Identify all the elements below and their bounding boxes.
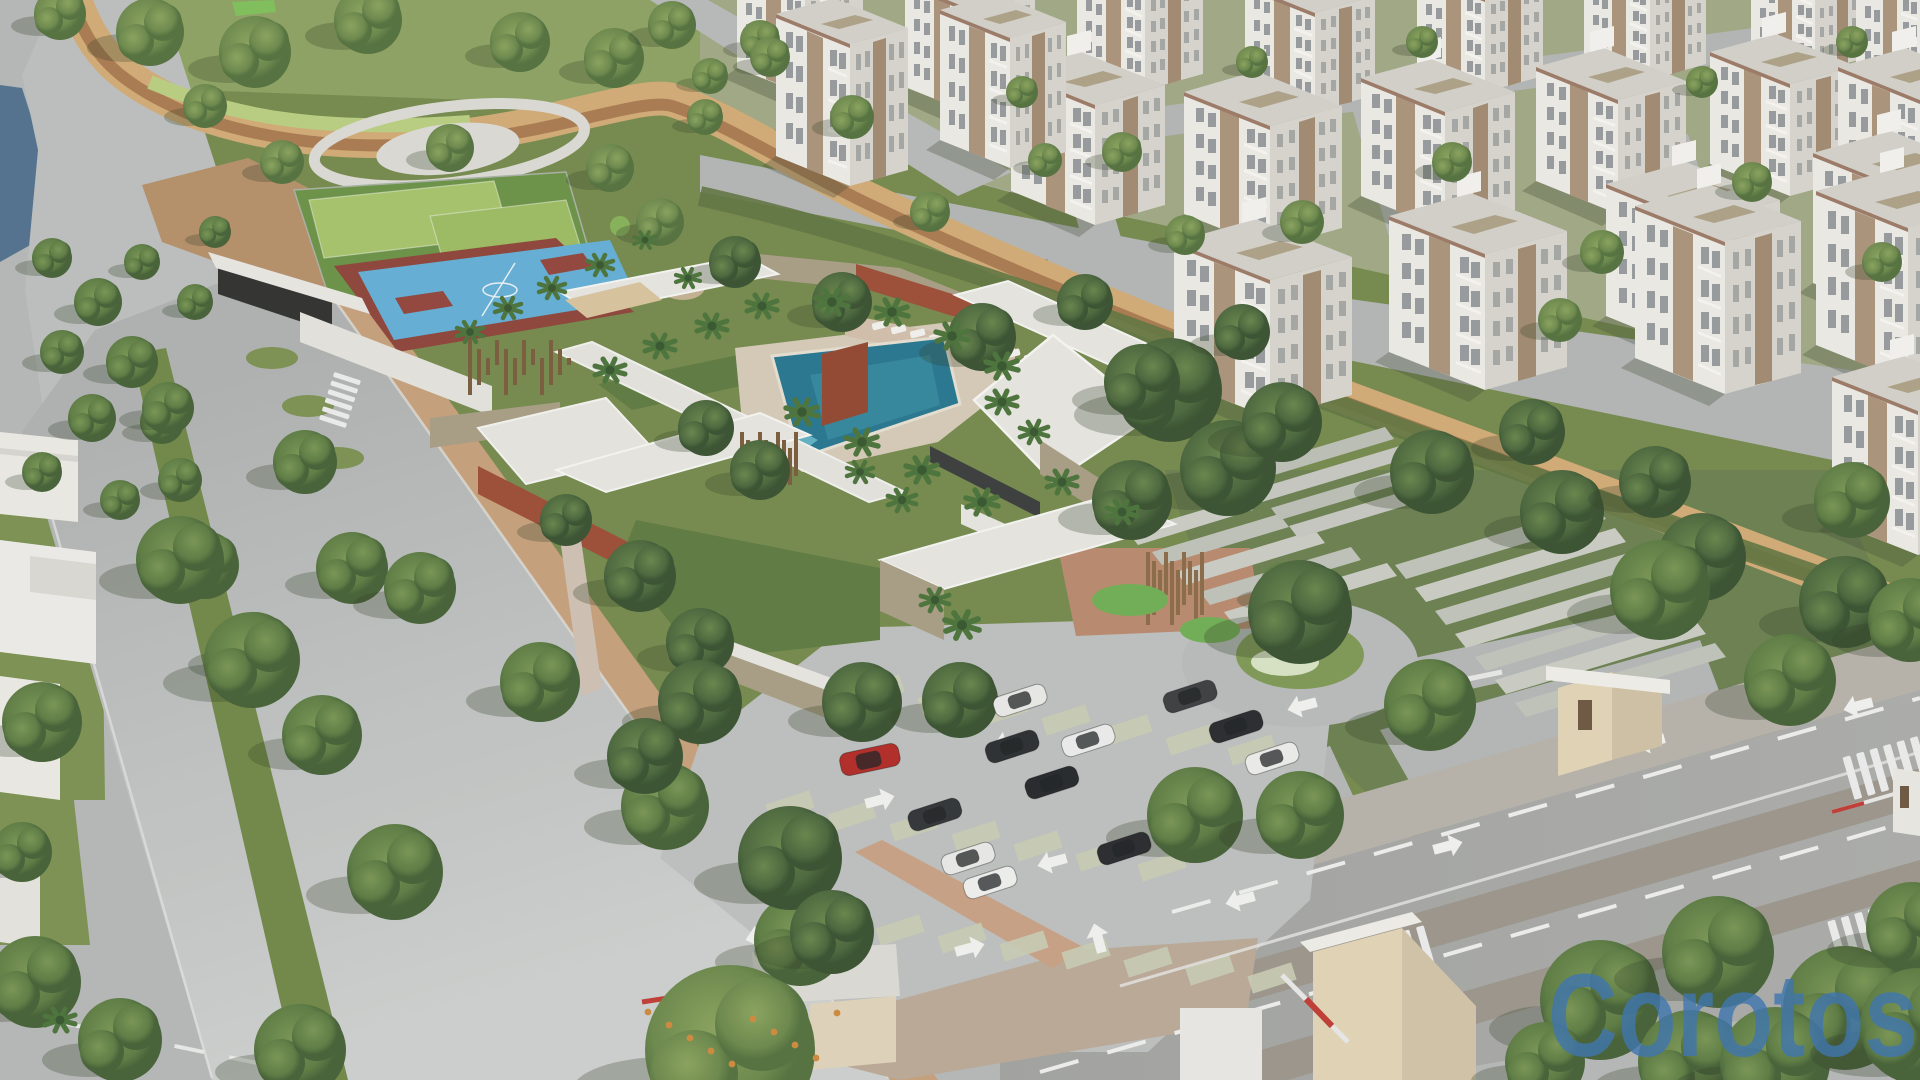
svg-text:Corotos: Corotos	[1548, 950, 1918, 1080]
